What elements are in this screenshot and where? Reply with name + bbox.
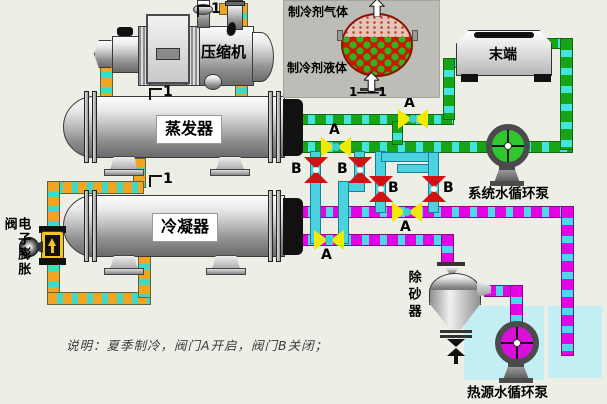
valve-a2-label: A <box>329 122 340 138</box>
condenser-flange-l2 <box>92 190 97 262</box>
sand-remover-drain-flange1 <box>440 330 472 333</box>
pipe-crossover-bridge-inner <box>397 164 430 173</box>
compressor-box-panel <box>156 48 180 60</box>
valve-a3-label: A <box>400 219 411 235</box>
system-pump <box>486 124 530 168</box>
section-marker-bracket-1 <box>197 5 210 17</box>
drain-valve <box>447 339 465 356</box>
evaporator-foot-right-base <box>210 169 250 176</box>
expansion-valve-arrow-stem <box>51 245 54 253</box>
condenser-flange-r1 <box>268 190 273 262</box>
hvac-system-diagram: 压缩机 蒸发器 冷凝器 末端 系统水循环泵 热源水循环泵 <box>0 0 607 404</box>
pipe-heat-supply-drop <box>561 206 574 356</box>
vessel-stub-left <box>337 30 343 41</box>
valve-b3-label: B <box>388 180 399 196</box>
valve-b1 <box>304 157 328 183</box>
sand-remover-body <box>429 290 481 305</box>
vessel-liquid-zone <box>343 37 411 75</box>
terminal-label: 末端 <box>489 48 517 63</box>
pipe-sand-remover-inlet <box>441 234 454 264</box>
condenser-label-box: 冷凝器 <box>152 213 218 242</box>
sand-remover-label: 除砂器 <box>406 270 420 340</box>
expansion-valve-label: 电子膨胀阀 <box>2 217 29 289</box>
valve-a4-label: A <box>321 247 332 263</box>
pipe-condenser-bottom-v <box>138 254 151 298</box>
pipe-heat-pump-riser <box>510 285 523 325</box>
valve-b1-label: B <box>291 161 302 177</box>
section-marker-bracket-2 <box>149 88 162 100</box>
evaporator-flange-l1 <box>84 91 89 163</box>
heat-source-pump-plate <box>499 378 533 383</box>
valve-b2-label: B <box>337 161 348 177</box>
expansion-valve-bottom-band <box>39 258 66 265</box>
evaporator-label: 蒸发器 <box>165 121 213 138</box>
terminal-foot-right <box>534 74 551 82</box>
evaporator-flange-r2 <box>276 91 281 163</box>
vessel-outlet-arrow-icon <box>369 0 385 17</box>
compressor-discharge-flange <box>225 1 245 6</box>
section-marker-3: 1 <box>163 171 173 187</box>
valve-b4-label: B <box>443 180 454 196</box>
condenser-flange-l1 <box>84 190 89 262</box>
compressor-left-cap <box>117 27 133 36</box>
pipe-condenser-bottom-h <box>47 292 151 305</box>
system-pump-label: 系统水循环泵 <box>468 187 549 201</box>
inset-section-label: 1——1 <box>349 86 386 99</box>
inset-liquid-label: 制冷剂液体 <box>287 62 347 75</box>
evaporator-flange-l2 <box>92 91 97 163</box>
condenser-flange-r2 <box>276 190 281 262</box>
pipe-terminal-right-riser <box>560 38 573 150</box>
section-marker-bracket-3 <box>149 175 162 187</box>
terminal-foot-left <box>461 74 478 82</box>
caption-note: 说明：夏季制冷，阀门A开启，阀门B关闭； <box>66 335 328 354</box>
condenser-end-cap <box>283 198 303 255</box>
evaporator-label-box: 蒸发器 <box>156 115 222 144</box>
heat-source-pump <box>495 321 539 365</box>
sand-remover-top-flange <box>437 262 465 266</box>
condenser-label: 冷凝器 <box>161 219 209 236</box>
sand-remover-drain-flange2 <box>440 335 472 338</box>
refrigerant-vessel <box>341 13 413 77</box>
heat-source-pump-label: 热源水循环泵 <box>467 386 548 400</box>
condenser-foot-left-base <box>104 268 144 275</box>
evaporator-foot-left-base <box>104 169 144 176</box>
compressor-right-bell <box>252 32 274 82</box>
pipe-chilled-supply <box>296 114 454 125</box>
evaporator-end-cap <box>283 99 303 156</box>
vessel-gas-zone <box>343 15 411 37</box>
pipe-terminal-left-riser <box>443 58 455 120</box>
section-marker-1: 1 <box>211 1 221 17</box>
section-marker-2: 1 <box>163 84 173 100</box>
terminal-vent-slot <box>474 32 534 38</box>
heat-source-tank-right <box>548 306 602 378</box>
inset-gas-label: 制冷剂气体 <box>288 6 348 19</box>
compressor-bottom-fitting <box>204 74 222 90</box>
drain-valve-stem <box>454 355 458 364</box>
valve-a2 <box>321 137 351 157</box>
vessel-stub-right <box>412 30 418 41</box>
evaporator-flange-r1 <box>268 91 273 163</box>
valve-a1 <box>398 109 428 129</box>
condenser-foot-right-base <box>206 268 246 275</box>
compressor-label: 压缩机 <box>201 45 246 61</box>
